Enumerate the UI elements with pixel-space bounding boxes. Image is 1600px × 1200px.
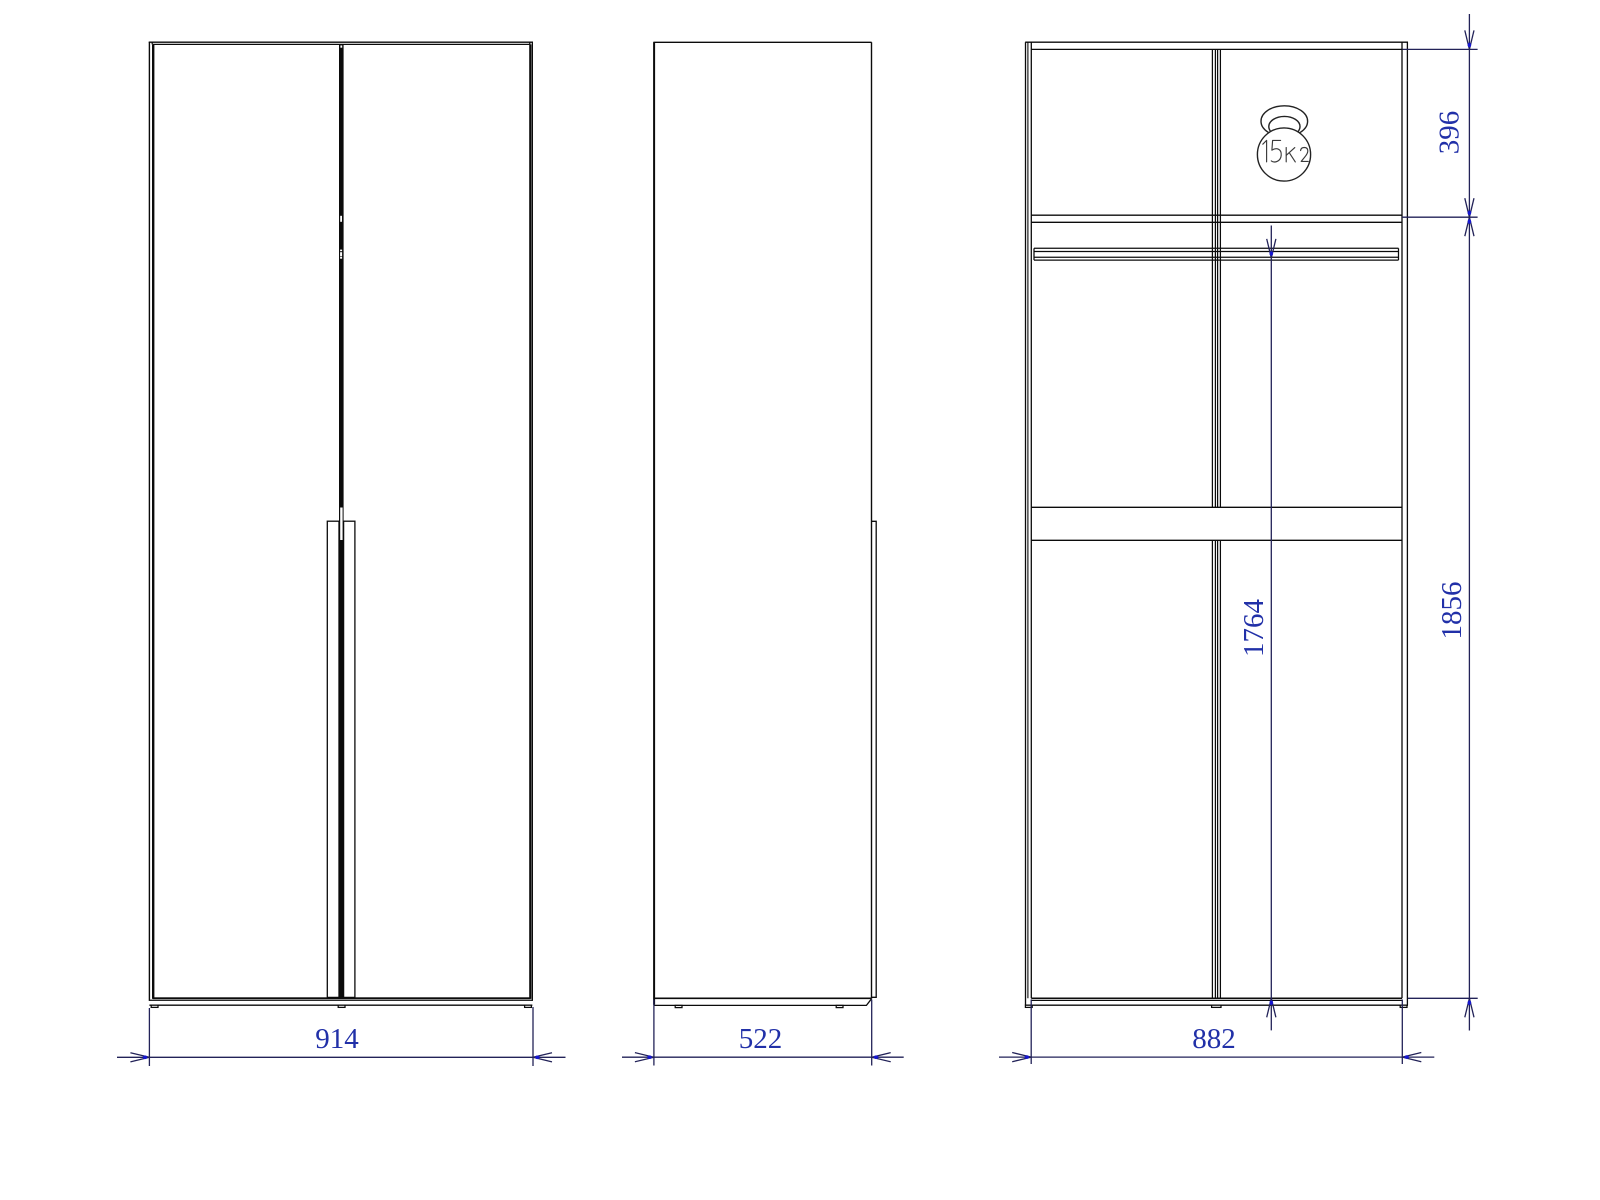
svg-text:882: 882	[1192, 1023, 1236, 1055]
svg-text:522: 522	[739, 1023, 783, 1055]
svg-text:914: 914	[315, 1023, 359, 1055]
svg-text:1764: 1764	[1238, 599, 1270, 658]
svg-text:396: 396	[1434, 111, 1466, 155]
svg-text:1856: 1856	[1436, 582, 1468, 640]
